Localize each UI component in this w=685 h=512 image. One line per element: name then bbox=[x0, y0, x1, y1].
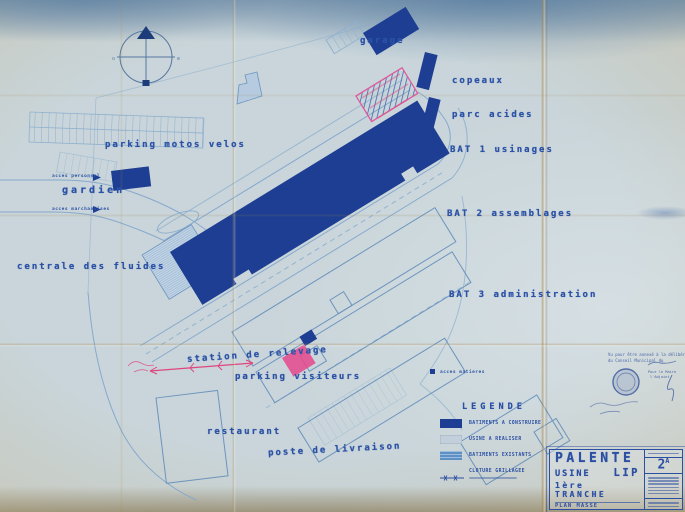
fence-line-icon bbox=[440, 474, 464, 482]
municipal-approval-stamp: Vu pour être annexé à la délibération du… bbox=[586, 349, 685, 423]
building-garage bbox=[363, 7, 419, 55]
label-restaurant: restaurant bbox=[207, 427, 281, 437]
title-block-sidebar: 2A bbox=[644, 450, 682, 509]
legend-label: BATIMENTS A CONSTRUIRE bbox=[469, 421, 541, 426]
fine-print-date bbox=[645, 499, 682, 512]
svg-text:e: e bbox=[177, 56, 180, 62]
compass-icon: o e bbox=[112, 26, 180, 86]
label-acces-matieres: acces matieres bbox=[440, 370, 485, 375]
legend-label: CLOTURE GRILLAGEE bbox=[469, 469, 525, 474]
label-acces-marchandises: acces marchandises bbox=[52, 207, 110, 212]
legend-item: BATIMENTS EXISTANTS bbox=[440, 451, 560, 460]
label-centrale-fluides: centrale des fluides bbox=[17, 262, 165, 272]
label-parc-acides: parc acides bbox=[452, 110, 534, 120]
legend-label: BATIMENTS EXISTANTS bbox=[469, 453, 531, 458]
stamp-line1: Vu pour être annexé à la délibération bbox=[608, 352, 685, 357]
label-bat1: BAT 1 usinages bbox=[450, 145, 554, 155]
legend-item: CLOTURE GRILLAGEE bbox=[440, 467, 560, 475]
sheet-number: 2A bbox=[645, 458, 682, 474]
legend-swatch-existing-buildings bbox=[440, 451, 462, 460]
label-parking-visiteurs: parking visiteurs bbox=[235, 372, 361, 382]
label-garage: garage bbox=[360, 36, 405, 46]
legend-item: USINE A REALISER bbox=[440, 435, 560, 444]
legend-swatch-future-factory bbox=[440, 435, 462, 444]
legend-fine-print bbox=[469, 477, 517, 479]
legend-label: USINE A REALISER bbox=[469, 437, 522, 442]
title-usine: USINE bbox=[555, 469, 591, 479]
label-gardien: gardien bbox=[62, 185, 125, 196]
handwritten-note bbox=[590, 402, 638, 414]
label-acces-personnel: acces personnel bbox=[52, 174, 100, 179]
stamp-maire2: l'Adjoint bbox=[650, 375, 669, 379]
scanned-plan-sheet: o e garage copeaux parc acides BAT 1 usi… bbox=[0, 0, 685, 512]
building-bat1 bbox=[170, 100, 450, 304]
stamp-maire1: Pour le Maire bbox=[648, 370, 676, 374]
title-block-main: PALENTE USINE LIP 1ère TRANCHE PLAN MASS… bbox=[550, 450, 644, 509]
title-block: PALENTE USINE LIP 1ère TRANCHE PLAN MASS… bbox=[549, 449, 683, 510]
legend-swatch-new-buildings bbox=[440, 419, 462, 428]
fine-print-architect bbox=[645, 474, 682, 499]
building-copeaux bbox=[416, 52, 437, 90]
drawing-name: PLAN MASSE bbox=[555, 503, 598, 510]
title-lip: LIP bbox=[614, 467, 640, 479]
legend: LEGENDE BATIMENTS A CONSTRUIRE USINE A R… bbox=[440, 402, 560, 479]
label-copeaux: copeaux bbox=[452, 76, 504, 86]
legend-title: LEGENDE bbox=[462, 402, 560, 412]
site-plan-drawing: o e bbox=[0, 0, 685, 512]
label-parking-motos: parking motos velos bbox=[105, 140, 246, 150]
legend-item: BATIMENTS A CONSTRUIRE bbox=[440, 419, 560, 428]
svg-text:o: o bbox=[112, 56, 115, 62]
label-bat2: BAT 2 assemblages bbox=[447, 209, 573, 219]
title-tranche: 1ère TRANCHE bbox=[555, 481, 640, 499]
project-name: PALENTE bbox=[555, 452, 640, 466]
label-bat3: BAT 3 administration bbox=[449, 290, 597, 300]
legend-swatch-fence bbox=[440, 467, 462, 475]
